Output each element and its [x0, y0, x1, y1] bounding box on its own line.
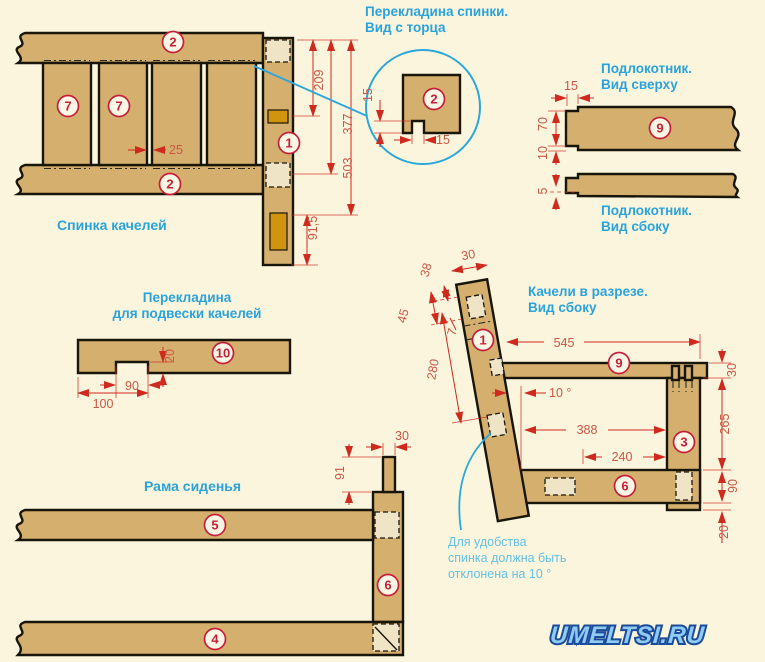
part-badge-section-post: 3	[674, 432, 695, 453]
dim-top-30: 30	[460, 247, 476, 263]
part-badge-armrest: 9	[650, 118, 671, 139]
dim-right-20: 20	[717, 525, 731, 539]
back-frame-title: Спинка качелей	[57, 217, 167, 233]
section-side-rail	[505, 470, 700, 503]
tilt-note-2: спинка должна быть	[448, 551, 566, 565]
post-slot-upper	[268, 110, 288, 123]
dim-15-h: 15	[436, 133, 450, 147]
dim-25: 25	[169, 143, 183, 157]
dim-38: 38	[418, 261, 435, 278]
part-badge-slat-a: 7	[58, 96, 79, 117]
hanger-title-2: для подвески качелей	[113, 306, 262, 321]
section-title-2: Вид сбоку	[528, 300, 597, 315]
section-back-post	[456, 279, 529, 521]
svg-text:1: 1	[285, 136, 292, 151]
post-mortise-lower	[266, 163, 290, 187]
hanging-bar-view: 20 90 100 10 Перекладина для подвески ка…	[78, 290, 290, 411]
svg-text:2: 2	[169, 35, 176, 50]
seat-corner-notch	[373, 624, 399, 651]
dim-arm-5: 5	[536, 187, 550, 194]
armrest-side-view	[566, 174, 738, 197]
armrest-top-title-2: Вид сверху	[601, 77, 678, 92]
dim-388: 388	[577, 423, 598, 437]
dim-209: 209	[312, 70, 326, 91]
detail-title-2: Вид с торца	[365, 20, 446, 35]
tilt-note-1: Для удобства	[448, 535, 527, 549]
dim-7: 7	[444, 327, 459, 337]
armrest-top-title-1: Подлокотник.	[601, 61, 692, 76]
part-badge-section-rail: 6	[615, 476, 636, 497]
post-slot-bottom	[270, 213, 287, 250]
dim-503: 503	[341, 158, 355, 179]
dim-right-90: 90	[726, 479, 740, 493]
swing-plan-diagram: 209 377 503 91,5 25 2 7 7 2 1 Спинка кач…	[0, 0, 765, 662]
dim-right-30: 30	[725, 363, 739, 377]
drawing-canvas: 209 377 503 91,5 25 2 7 7 2 1 Спинка кач…	[0, 0, 765, 662]
side-rail-mortise	[545, 478, 575, 495]
part-badge-post: 1	[279, 133, 300, 154]
armrest-views: 15 70 10 5 9 Подлокотник. Вид сверху Под…	[536, 61, 738, 234]
back-post-mortise-upper	[466, 294, 486, 318]
svg-text:3: 3	[680, 435, 687, 450]
back-bottom-rail	[17, 165, 263, 194]
back-frame-view: 209 377 503 91,5 25 2 7 7 2 1 Спинка кач…	[17, 32, 358, 266]
dim-377: 377	[341, 114, 355, 135]
seat-rail-5	[17, 510, 373, 540]
seat-frame-title: Рама сиденья	[144, 478, 241, 494]
hanger-title-1: Перекладина	[143, 290, 232, 305]
svg-text:6: 6	[621, 479, 628, 494]
dim-91-5: 91,5	[306, 216, 320, 240]
seat-post-tenon	[383, 457, 395, 492]
svg-text:9: 9	[656, 121, 663, 136]
part-badge-hanger: 10	[213, 343, 234, 364]
dim-100: 100	[93, 397, 114, 411]
post-tenon-prong-2	[685, 366, 692, 380]
part-badge-rail-bottom: 2	[160, 174, 181, 195]
part-badge-seat-top: 5	[205, 515, 226, 536]
svg-text:2: 2	[166, 177, 173, 192]
dim-seat-30: 30	[395, 429, 409, 443]
svg-text:1: 1	[479, 333, 486, 348]
site-watermark: UMELTSI.RU	[549, 622, 706, 649]
dim-45: 45	[395, 307, 412, 324]
section-back-post-group	[456, 279, 529, 521]
dim-angle-10: 10 °	[549, 386, 571, 400]
dim-arm-70: 70	[536, 117, 550, 131]
part-badge-section-back: 1	[473, 330, 494, 351]
part-badge-rail-top: 2	[163, 32, 184, 53]
cross-section-view: 30 38 45 7 280 545 10 ° 388	[395, 247, 740, 581]
part-badge-section-armrest: 9	[609, 353, 630, 374]
dim-arm-10: 10	[536, 146, 550, 160]
dim-arm-15: 15	[564, 79, 578, 93]
part-badge-slat-b: 7	[109, 96, 130, 117]
dim-90-notch: 90	[125, 379, 139, 393]
part-badge-detail: 2	[424, 89, 445, 110]
dim-265: 265	[718, 414, 732, 435]
detail-title-1: Перекладина спинки.	[365, 4, 508, 19]
svg-text:9: 9	[615, 356, 622, 371]
dim-280: 280	[424, 358, 441, 381]
post-tenon-prong-1	[672, 366, 679, 380]
back-slat-4	[207, 63, 256, 165]
svg-text:7: 7	[115, 99, 122, 114]
armrest-side-title-1: Подлокотник.	[601, 203, 692, 218]
tilt-note-3: отклонена на 10 °	[448, 567, 551, 581]
section-title-1: Качели в разрезе.	[528, 284, 648, 299]
svg-text:2: 2	[430, 92, 437, 107]
svg-text:6: 6	[384, 578, 391, 593]
dim-240: 240	[612, 450, 633, 464]
dim-545: 545	[554, 336, 575, 350]
seat-post-mortise	[375, 512, 399, 538]
part-badge-seat-bottom: 4	[205, 629, 226, 650]
hanging-bar	[78, 340, 290, 373]
back-top-rail	[17, 33, 263, 63]
dim-seat-91: 91	[333, 466, 347, 480]
front-post-mortise	[676, 472, 692, 500]
svg-text:5: 5	[211, 518, 218, 533]
part-badge-seat-post: 6	[378, 575, 399, 596]
seat-frame-view: 30 91 5 4 6 Рама сиденья	[17, 429, 411, 655]
svg-text:4: 4	[211, 632, 219, 647]
dim-15-v: 15	[361, 88, 375, 102]
armrest-side-title-2: Вид сбоку	[601, 219, 670, 234]
svg-text:10: 10	[216, 346, 230, 361]
svg-text:7: 7	[64, 99, 71, 114]
dim-20-notch: 20	[163, 349, 177, 363]
post-mortise-top	[266, 40, 290, 62]
